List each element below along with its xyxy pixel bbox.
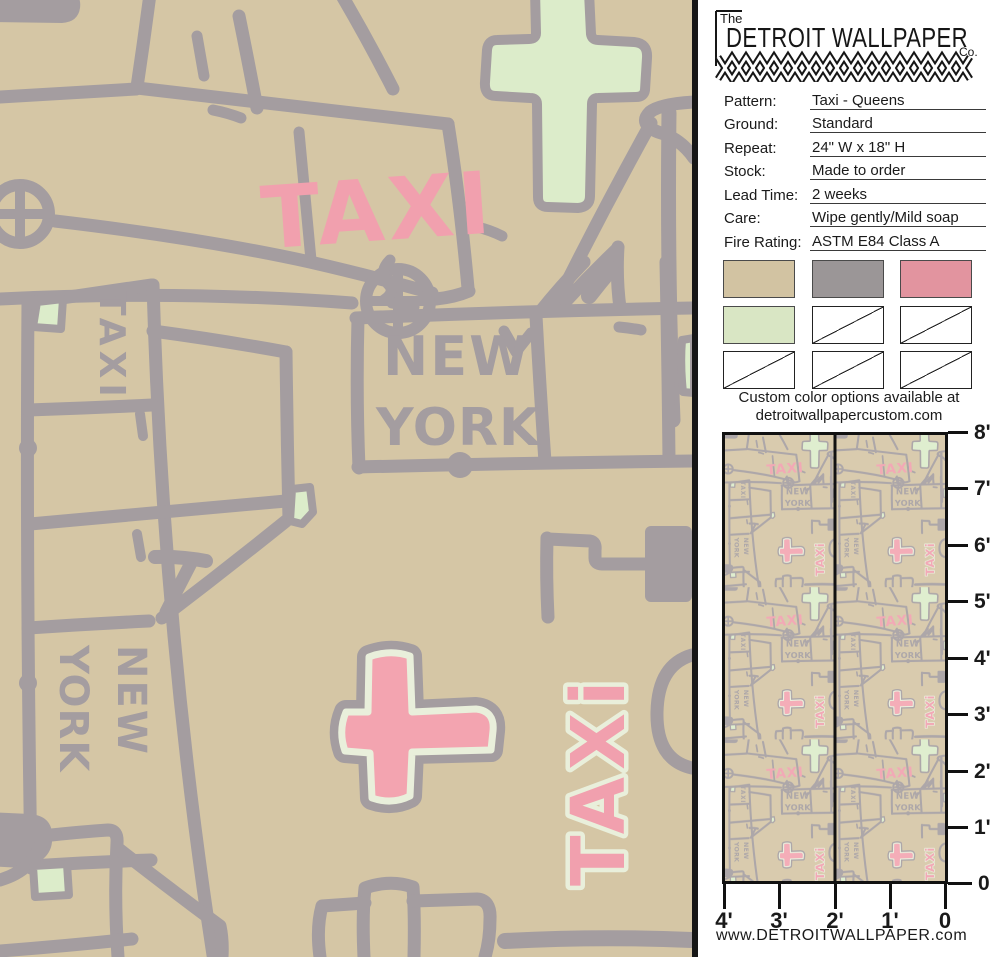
- brand-logo: The DETROIT WALLPAPER Co.: [712, 6, 994, 82]
- brand-name: DETROIT WALLPAPER: [726, 22, 968, 53]
- ruler-tick: [948, 826, 968, 829]
- spec-label: Repeat:: [724, 140, 810, 157]
- ruler-label: 1': [974, 816, 991, 840]
- spec-label: Lead Time:: [724, 187, 810, 204]
- ruler-label: 3': [974, 703, 991, 727]
- spec-value: Wipe gently/Mild soap: [810, 209, 986, 227]
- ruler-tick: [948, 882, 972, 885]
- ruler-tick: [723, 884, 726, 909]
- spec-value: Standard: [810, 115, 986, 133]
- spec-row-fire-rating: Fire Rating: ASTM E84 Class A: [724, 227, 986, 251]
- spec-label: Stock:: [724, 163, 810, 180]
- custom-note-link[interactable]: detroitwallpapercustom.com: [698, 407, 1000, 425]
- swatch-ground[interactable]: [723, 260, 795, 298]
- spec-row-ground: Ground: Standard: [724, 110, 986, 134]
- website-link[interactable]: www.DETROITWALLPAPER.com: [716, 927, 954, 945]
- swatch-gray[interactable]: [812, 260, 884, 298]
- swatch-empty: [900, 351, 972, 389]
- scale-preview: [722, 432, 948, 884]
- ruler-tick: [944, 884, 947, 909]
- wallpaper-pattern-sample: [0, 0, 698, 957]
- ruler-tick: [948, 431, 968, 434]
- info-panel: The DETROIT WALLPAPER Co. Pattern: Taxi …: [698, 0, 1000, 957]
- spec-row-pattern: Pattern: Taxi - Queens: [724, 86, 986, 110]
- ruler-label: 7': [974, 477, 991, 501]
- spec-label: Ground:: [724, 116, 810, 133]
- spec-value: ASTM E84 Class A: [810, 233, 986, 251]
- swatch-green[interactable]: [723, 306, 795, 344]
- swatch-empty: [900, 306, 972, 344]
- ruler-tick: [948, 713, 968, 716]
- spec-value: Made to order: [810, 162, 986, 180]
- spec-list: Pattern: Taxi - Queens Ground: Standard …: [724, 86, 986, 251]
- swatch-pink[interactable]: [900, 260, 972, 298]
- spec-value: 2 weeks: [810, 186, 986, 204]
- logo-zigzag: [718, 57, 970, 79]
- custom-note-line1: Custom color options available at: [698, 389, 1000, 407]
- ruler-tick: [948, 544, 968, 547]
- spec-label: Care:: [724, 210, 810, 227]
- ruler-tick: [778, 884, 781, 909]
- ruler-label: 6': [974, 534, 991, 558]
- spec-value: 24" W x 18" H: [810, 139, 986, 157]
- custom-color-note: Custom color options available at detroi…: [698, 389, 1000, 424]
- swatch-empty: [723, 351, 795, 389]
- spec-label: Fire Rating:: [724, 234, 810, 251]
- spec-label: Pattern:: [724, 93, 810, 110]
- spec-row-lead-time: Lead Time: 2 weeks: [724, 180, 986, 204]
- ruler-label: 0: [978, 872, 990, 896]
- ruler-tick: [948, 657, 968, 660]
- spec-row-care: Care: Wipe gently/Mild soap: [724, 204, 986, 228]
- ruler-label: 4': [974, 647, 991, 671]
- ruler-tick: [948, 600, 968, 603]
- wallpaper-artwork: [0, 0, 692, 957]
- ruler-tick: [948, 770, 968, 773]
- colorway-swatches: [723, 260, 972, 389]
- ruler-label: 2': [974, 760, 991, 784]
- ruler-tick: [889, 884, 892, 909]
- ruler-tick: [834, 884, 837, 909]
- spec-row-stock: Stock: Made to order: [724, 157, 986, 181]
- spec-value: Taxi - Queens: [810, 92, 986, 110]
- spec-row-repeat: Repeat: 24" W x 18" H: [724, 133, 986, 157]
- ruler-label: 8': [974, 421, 991, 445]
- tiled-pattern-preview: [725, 435, 945, 881]
- swatch-empty: [812, 351, 884, 389]
- ruler-tick: [948, 487, 968, 490]
- product-sheet: The DETROIT WALLPAPER Co. Pattern: Taxi …: [0, 0, 1000, 957]
- ruler-label: 5': [974, 590, 991, 614]
- swatch-empty: [812, 306, 884, 344]
